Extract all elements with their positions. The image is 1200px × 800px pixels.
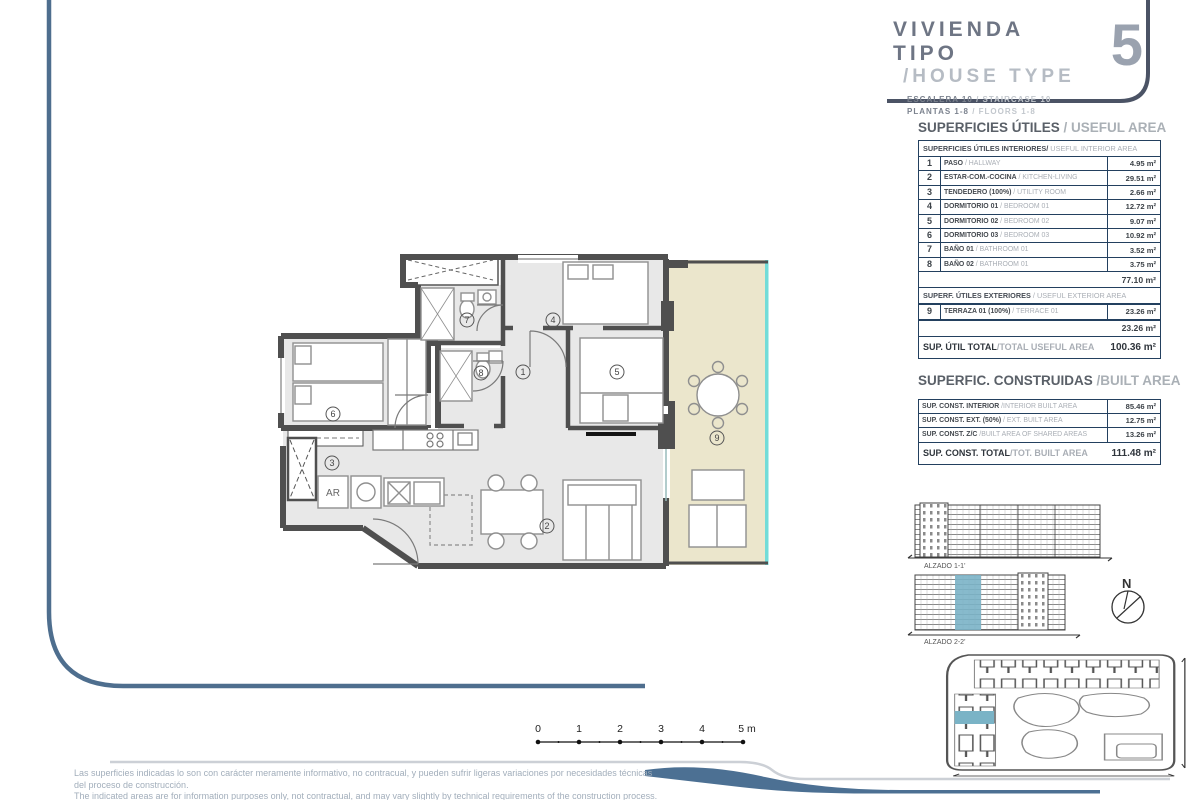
svg-text:3: 3	[658, 723, 664, 735]
room-name: ESTAR-COM.-COCINA / KITCHEN-LIVING	[941, 171, 1108, 184]
svg-text:4: 4	[699, 723, 705, 735]
svg-text:1: 1	[576, 723, 582, 735]
title-subtext: ESCALERA 10 / STAIRCASE 10 PLANTAS 1-8 /…	[893, 94, 1085, 117]
room-name: DORMITORIO 02 / BEDROOM 02	[941, 215, 1108, 228]
svg-text:5 m: 5 m	[738, 723, 756, 735]
useful-area-title: SUPERFICIES ÚTILES / USEFUL AREA	[918, 120, 1161, 135]
area-row: 6DORMITORIO 03 / BEDROOM 0310.92 m²	[919, 229, 1160, 243]
building-row-top	[974, 660, 1159, 688]
exterior-header: SUPERF. ÚTILES EXTERIORES / USEFUL EXTER…	[919, 288, 1160, 304]
area-row: 7BAÑO 01 / BATHROOM 013.52 m²	[919, 243, 1160, 257]
elevation-1: ALZADO 1-1'	[908, 503, 1112, 570]
built-name: SUP. CONST. EXT. (50%) / EXT. BUILT AREA	[919, 414, 1108, 427]
built-row: SUP. CONST. EXT. (50%) / EXT. BUILT AREA…	[919, 414, 1160, 428]
kitchen-counter	[373, 430, 478, 450]
svg-text:7: 7	[464, 315, 469, 325]
room-area: 10.92 m²	[1108, 231, 1160, 240]
room-area: 4.95 m²	[1108, 159, 1160, 168]
scale-bar: 0 1 2 3 4 5 m	[528, 718, 768, 754]
elevation-2: ALZADO 2-2'	[908, 573, 1080, 646]
room-area: 23.26 m²	[1108, 307, 1160, 316]
exterior-subtotal: 23.26 m²	[919, 320, 1160, 336]
useful-total-row: SUP. ÚTIL TOTAL/TOTAL USEFUL AREA 100.36…	[918, 336, 1161, 359]
built-total-value: 111.48 m²	[1112, 448, 1156, 459]
room-area: 29.51 m²	[1108, 174, 1160, 183]
room-name: TENDEDERO (100%) / UTILITY ROOM	[941, 186, 1108, 199]
area-row: 9TERRAZA 01 (100%) / TERRACE 0123.26 m²	[919, 304, 1160, 319]
elevation-drawings: ALZADO 1-1' ALZADO 2-2' N	[900, 495, 1200, 655]
built-area-value: 85.46 m²	[1108, 402, 1160, 411]
building-col-left	[955, 694, 996, 766]
svg-text:5: 5	[614, 367, 619, 377]
shaft	[288, 438, 316, 500]
floor-plan-drawing: 1 2 3 4 5 6 7 8 9 AR	[268, 243, 778, 578]
house-type-number: 5	[1085, 18, 1143, 73]
area-row: 4DORMITORIO 01 / BEDROOM 0112.72 m²	[919, 200, 1160, 214]
room-number: 6	[919, 229, 941, 242]
disclaimer-en-line: The indicated areas are for information …	[74, 791, 1189, 800]
terrace-glass-edge	[765, 260, 769, 565]
svg-text:1: 1	[520, 367, 525, 377]
room-number: 4	[919, 200, 941, 213]
interior-subtotal: 77.10 m²	[919, 272, 1160, 288]
room-name: DORMITORIO 03 / BEDROOM 03	[941, 229, 1108, 242]
title-block: VIVIENDA TIPO /HOUSE TYPE ESCALERA 10 / …	[893, 18, 1143, 117]
unit-highlight	[955, 575, 981, 630]
scale-labels: 0 1 2 3 4 5 m	[535, 723, 756, 735]
svg-text:4: 4	[550, 315, 555, 325]
room-name: TERRAZA 01 (100%) / TERRACE 01	[941, 305, 1108, 318]
room-number: 2	[919, 171, 941, 184]
room-name: DORMITORIO 01 / BEDROOM 01	[941, 200, 1108, 213]
built-name: SUP. CONST. Z/C /BUILT AREA OF SHARED AR…	[919, 428, 1108, 441]
elevation-2-label: ALZADO 2-2'	[924, 639, 965, 646]
built-row: SUP. CONST. Z/C /BUILT AREA OF SHARED AR…	[919, 428, 1160, 441]
area-row: 3TENDEDERO (100%) / UTILITY ROOM2.66 m²	[919, 186, 1160, 200]
disclaimer-es-line2: del proceso de construcción.	[74, 780, 1189, 792]
area-tables: SUPERFICIES ÚTILES / USEFUL AREA SUPERFI…	[918, 120, 1161, 465]
house-type-title-en: /HOUSE TYPE	[893, 66, 1085, 88]
svg-text:3: 3	[329, 458, 334, 468]
built-area-value: 13.26 m²	[1108, 430, 1160, 439]
room-area: 2.66 m²	[1108, 188, 1160, 197]
room-area: 3.75 m²	[1108, 260, 1160, 269]
room-number: 1	[919, 157, 941, 170]
svg-text:0: 0	[535, 723, 541, 735]
disclaimer-es-line1: Las superficies indicadas lo son con car…	[74, 768, 1189, 780]
elevation-1-label: ALZADO 1-1'	[924, 563, 965, 570]
floor-plan-sheet: VIVIENDA TIPO /HOUSE TYPE ESCALERA 10 / …	[0, 0, 1200, 800]
site-plan	[935, 648, 1200, 780]
area-row: 5DORMITORIO 02 / BEDROOM 029.07 m²	[919, 215, 1160, 229]
north-label: N	[1122, 576, 1131, 591]
north-compass-icon: N	[1112, 576, 1144, 623]
room-name: BAÑO 01 / BATHROOM 01	[941, 243, 1108, 256]
svg-text:9: 9	[714, 433, 719, 443]
useful-total-value: 100.36 m²	[1110, 342, 1156, 353]
built-total-row: SUP. CONST. TOTAL/TOT. BUILT AREA 111.48…	[918, 442, 1161, 465]
interior-header: SUPERFICIES ÚTILES INTERIORES/ USEFUL IN…	[919, 141, 1160, 157]
house-type-title-es: VIVIENDA TIPO	[893, 18, 1085, 66]
area-row: 8BAÑO 02 / BATHROOM 013.75 m²	[919, 258, 1160, 272]
area-row: 2ESTAR-COM.-COCINA / KITCHEN-LIVING29.51…	[919, 171, 1160, 185]
room-number: 5	[919, 215, 941, 228]
room-number: 3	[919, 186, 941, 199]
ar-appliance-label: AR	[326, 488, 340, 499]
room-area: 3.52 m²	[1108, 246, 1160, 255]
built-name: SUP. CONST. INTERIOR /INTERIOR BUILT ARE…	[919, 400, 1108, 413]
tv	[586, 432, 636, 436]
svg-text:2: 2	[544, 521, 549, 531]
disclaimer-text: Las superficies indicadas lo son con car…	[74, 768, 1189, 800]
room-name: PASO / HALLWAY	[941, 157, 1108, 170]
site-unit-highlight	[955, 711, 994, 724]
svg-text:8: 8	[478, 368, 483, 378]
svg-text:6: 6	[330, 409, 335, 419]
useful-area-table: SUPERFICIES ÚTILES INTERIORES/ USEFUL IN…	[918, 140, 1161, 337]
built-area-table: SUP. CONST. INTERIOR /INTERIOR BUILT ARE…	[918, 399, 1161, 443]
room-number: 9	[919, 305, 941, 318]
room-number: 7	[919, 243, 941, 256]
built-row: SUP. CONST. INTERIOR /INTERIOR BUILT ARE…	[919, 400, 1160, 414]
built-area-value: 12.75 m²	[1108, 416, 1160, 425]
room-area: 12.72 m²	[1108, 202, 1160, 211]
svg-text:2: 2	[617, 723, 623, 735]
built-area-title: SUPERFIC. CONSTRUIDAS /BUILT AREA	[918, 373, 1161, 388]
room-name: BAÑO 02 / BATHROOM 01	[941, 258, 1108, 271]
area-row: 1PASO / HALLWAY4.95 m²	[919, 157, 1160, 171]
room-area: 9.07 m²	[1108, 217, 1160, 226]
room-number: 8	[919, 258, 941, 271]
